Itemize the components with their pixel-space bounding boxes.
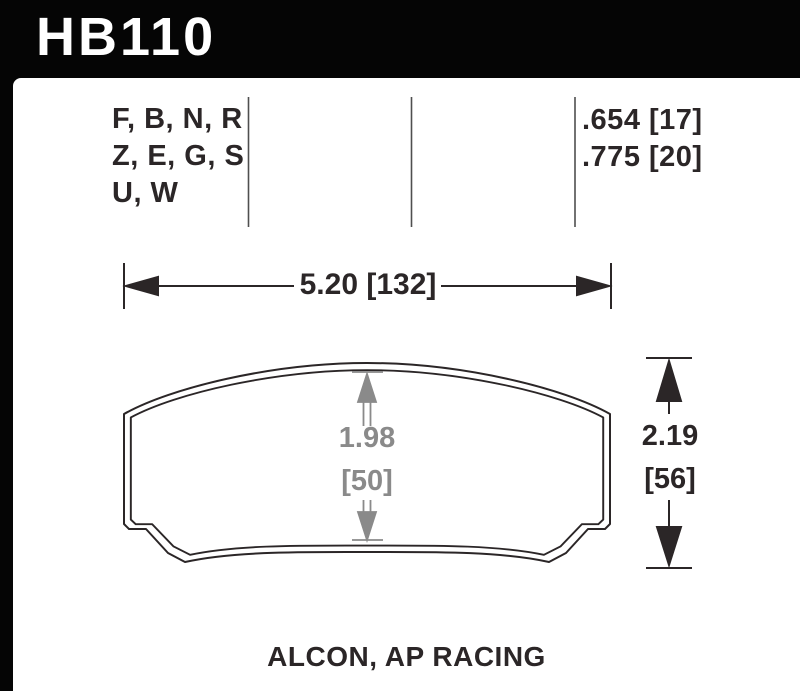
compound-row: F, B, N, R — [112, 103, 312, 136]
arrowhead-up-icon — [358, 374, 376, 402]
height-dimension-label-inches: 2.19 — [620, 420, 720, 453]
compound-row: Z, E, G, S — [112, 140, 312, 173]
arrowhead-up-icon — [657, 361, 681, 401]
applications-label: ALCON, AP RACING — [13, 641, 800, 673]
thickness-value: .654 [17] — [582, 104, 782, 137]
inner-height-dimension-label-mm: [50] — [317, 465, 417, 498]
arrowhead-down-icon — [358, 512, 376, 540]
height-dimension-label-mm: [56] — [620, 463, 720, 496]
arrowhead-down-icon — [657, 527, 681, 565]
inner-height-dimension-label-inches: 1.98 — [317, 422, 417, 455]
arrowhead-right-icon — [577, 277, 609, 295]
thickness-value: .775 [20] — [582, 141, 782, 174]
brake-pad-spec-sheet: HB110 — [0, 0, 800, 691]
arrowhead-left-icon — [126, 277, 158, 295]
width-dimension-label: 5.20 [132] — [268, 268, 468, 303]
inner-height-dimension-arrow — [352, 372, 383, 540]
compound-row: U, W — [112, 177, 312, 210]
